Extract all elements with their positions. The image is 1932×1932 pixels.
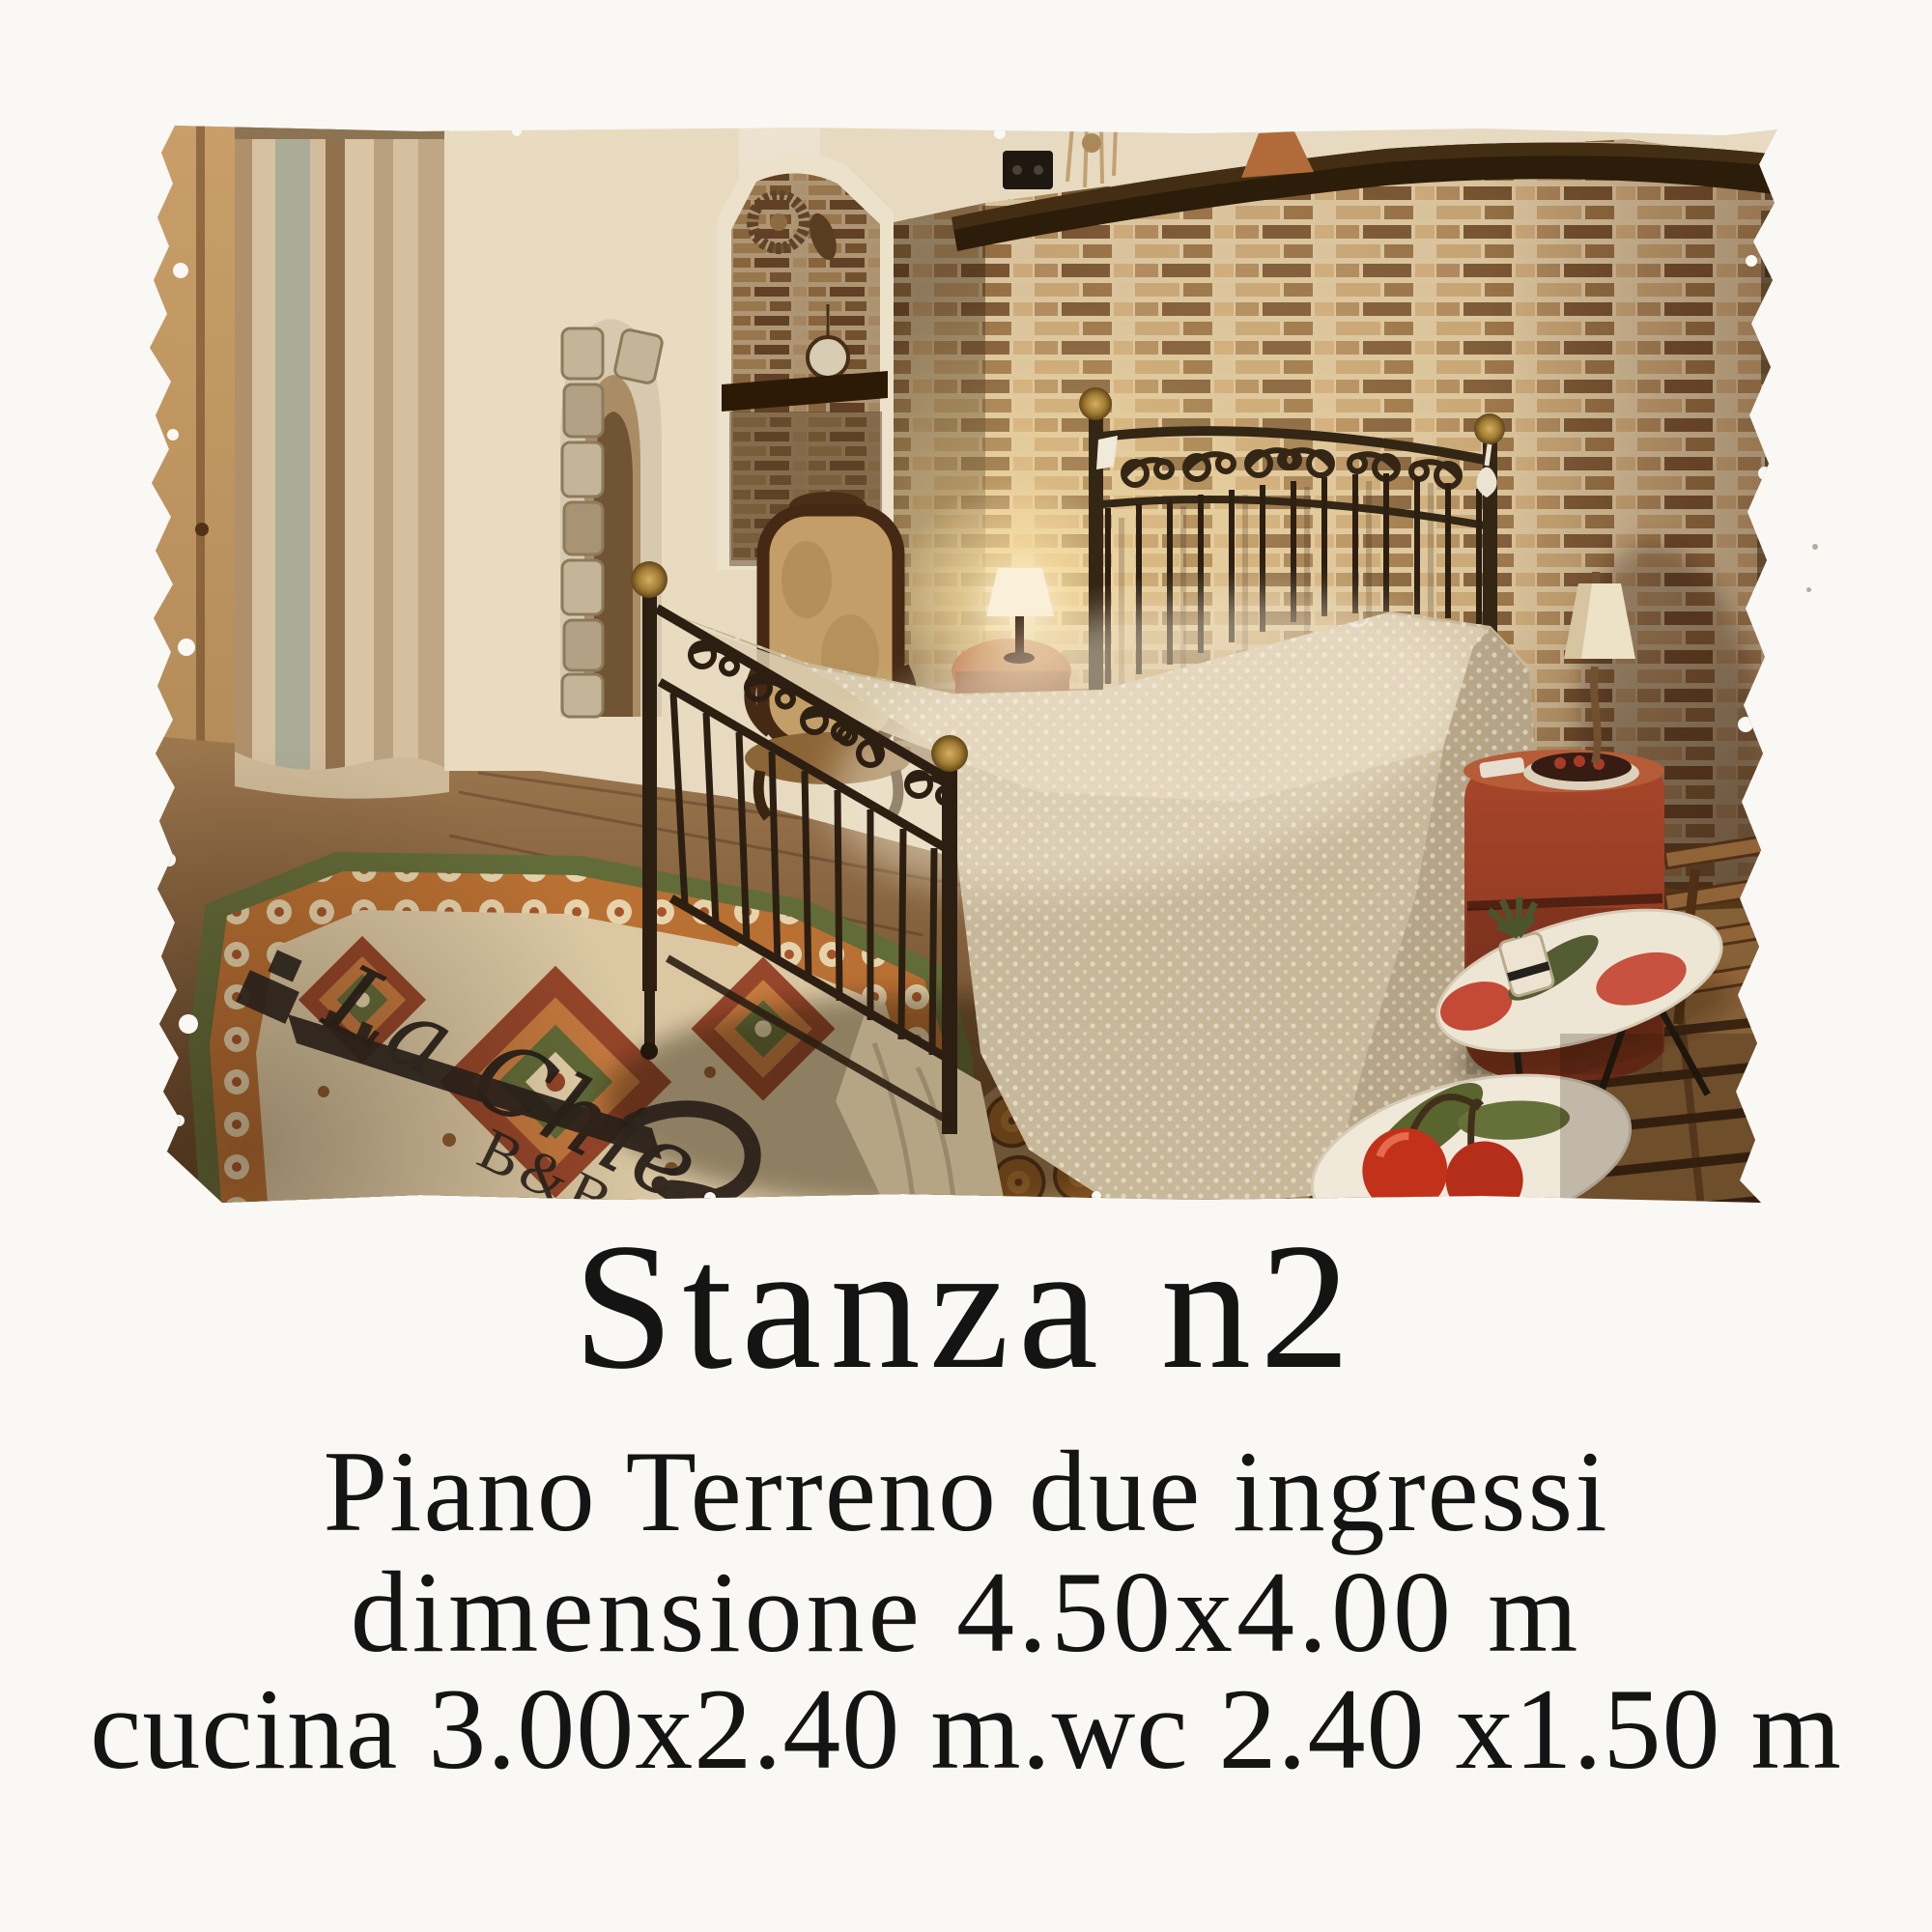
room-photo: La Chie B&B	[130, 126, 1795, 1203]
poster-canvas: La Chie B&B Stanza n2 Piano Terreno due …	[0, 0, 1932, 1932]
caption-room-dimensions: dimensione 4.50x4.00 m	[0, 1554, 1932, 1670]
caption-floor-info: Piano Terreno due ingressi	[0, 1434, 1932, 1549]
margin-speck	[1806, 587, 1811, 592]
room-title: Stanza n2	[0, 1216, 1932, 1397]
caption-kitchen-wc-dimensions: cucina 3.00x2.40 m.wc 2.40 x1.50 m	[0, 1671, 1932, 1787]
margin-speck	[1812, 544, 1818, 550]
